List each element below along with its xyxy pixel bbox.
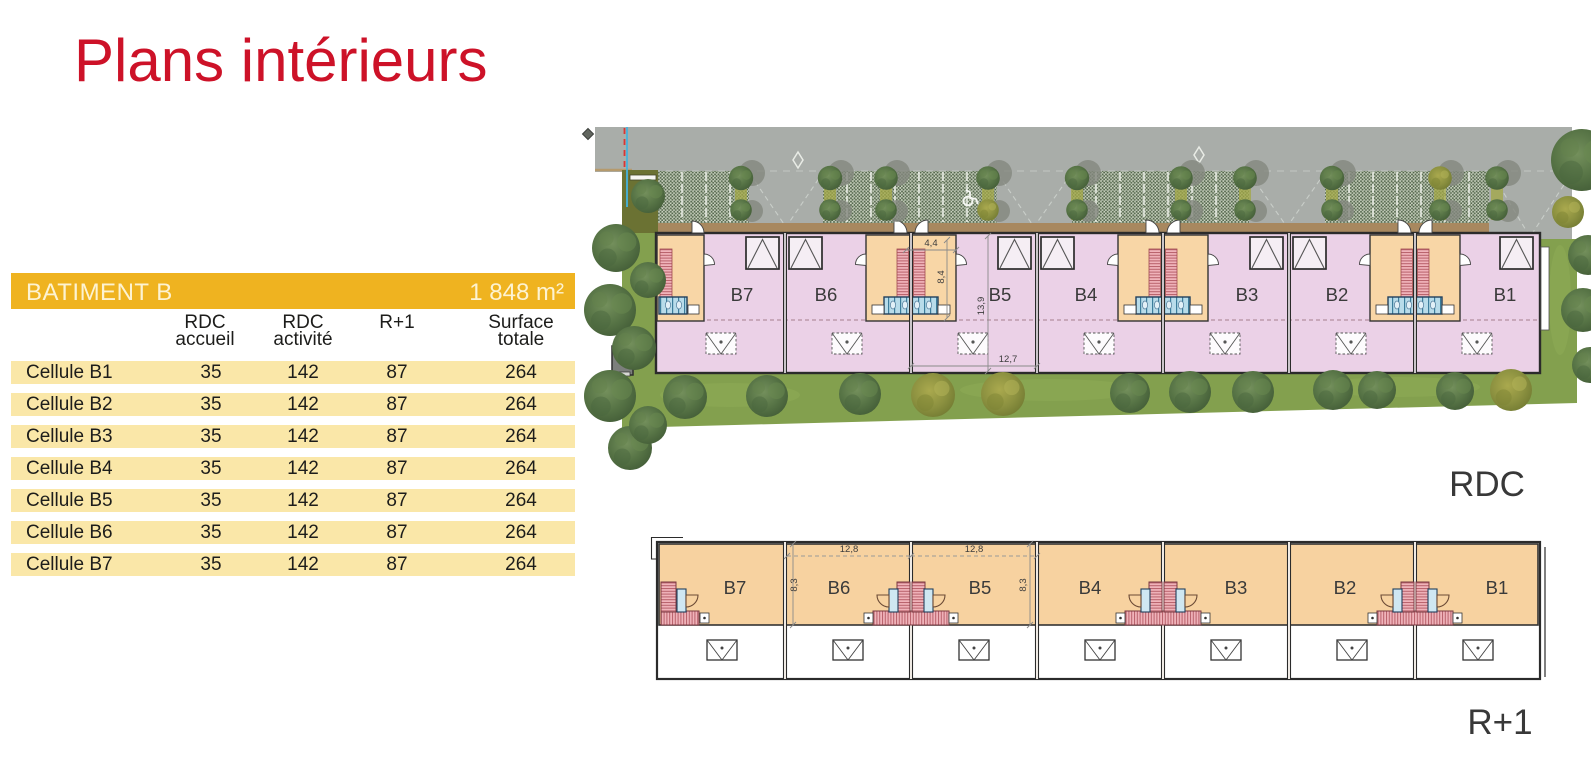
svg-text:B6: B6 <box>828 577 851 598</box>
svg-text:B3: B3 <box>1225 577 1248 598</box>
svg-text:12,8: 12,8 <box>840 544 859 555</box>
svg-text:4,4: 4,4 <box>924 238 937 249</box>
svg-text:12,7: 12,7 <box>999 354 1018 365</box>
svg-text:B1: B1 <box>1494 284 1517 305</box>
svg-text:B7: B7 <box>731 284 754 305</box>
svg-text:R+1: R+1 <box>1467 703 1532 742</box>
svg-text:B6: B6 <box>815 284 838 305</box>
svg-text:B4: B4 <box>1075 284 1098 305</box>
svg-text:13,9: 13,9 <box>976 297 987 316</box>
svg-text:B2: B2 <box>1326 284 1349 305</box>
svg-text:B5: B5 <box>969 577 992 598</box>
svg-text:B1: B1 <box>1486 577 1509 598</box>
svg-text:B3: B3 <box>1236 284 1259 305</box>
svg-text:B5: B5 <box>989 284 1012 305</box>
svg-text:8,3: 8,3 <box>1018 578 1029 591</box>
svg-text:B7: B7 <box>724 577 747 598</box>
svg-text:8,4: 8,4 <box>936 270 947 283</box>
svg-text:8,3: 8,3 <box>789 578 800 591</box>
svg-text:B2: B2 <box>1334 577 1357 598</box>
svg-text:12,8: 12,8 <box>965 544 984 555</box>
svg-text:RDC: RDC <box>1449 465 1525 504</box>
svg-text:B4: B4 <box>1079 577 1102 598</box>
